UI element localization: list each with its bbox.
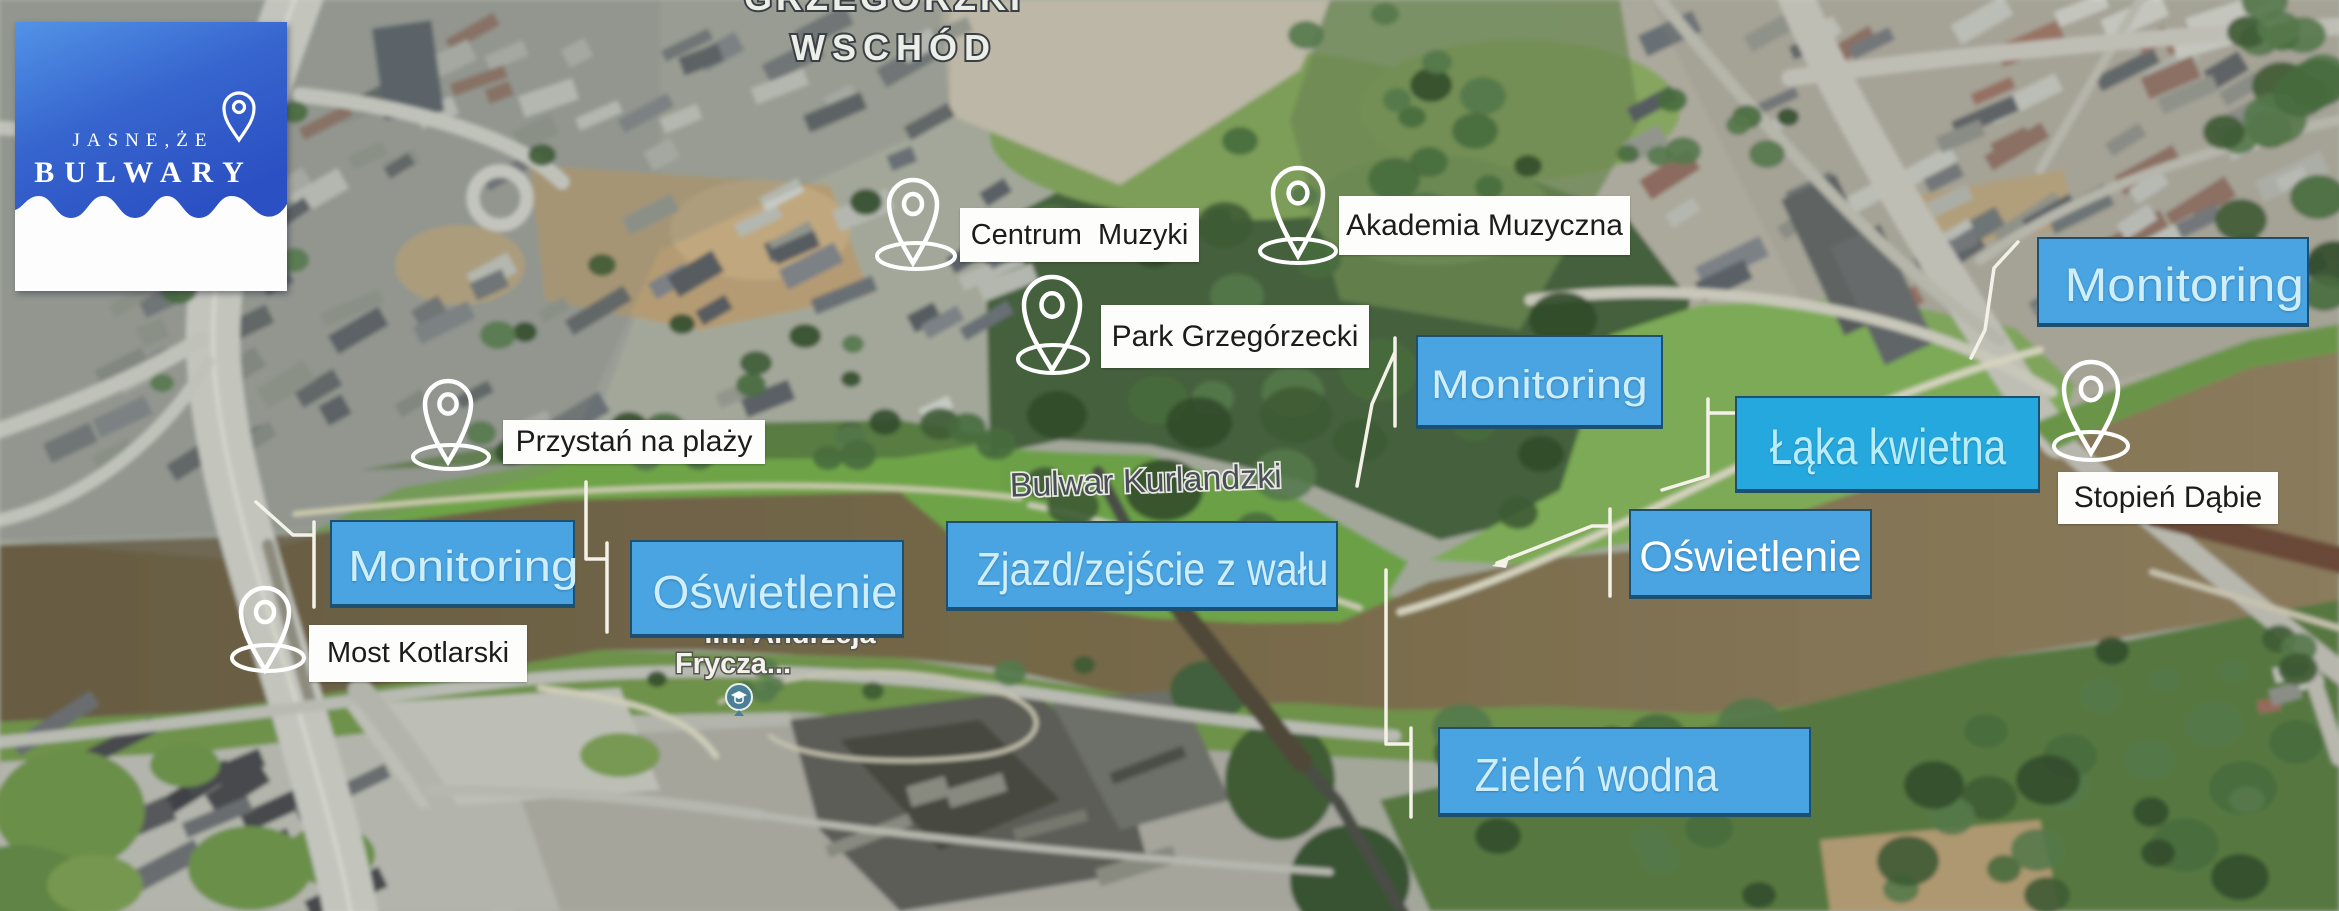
svg-text:Frycza...: Frycza... xyxy=(675,648,791,680)
svg-text:WSCHÓD: WSCHÓD xyxy=(791,26,997,68)
svg-text:GRZEGÓRZKI: GRZEGÓRZKI xyxy=(744,0,1024,18)
svg-text:JASNE,ŻE: JASNE,ŻE xyxy=(73,130,214,151)
svg-text:BULWARY: BULWARY xyxy=(34,156,254,189)
